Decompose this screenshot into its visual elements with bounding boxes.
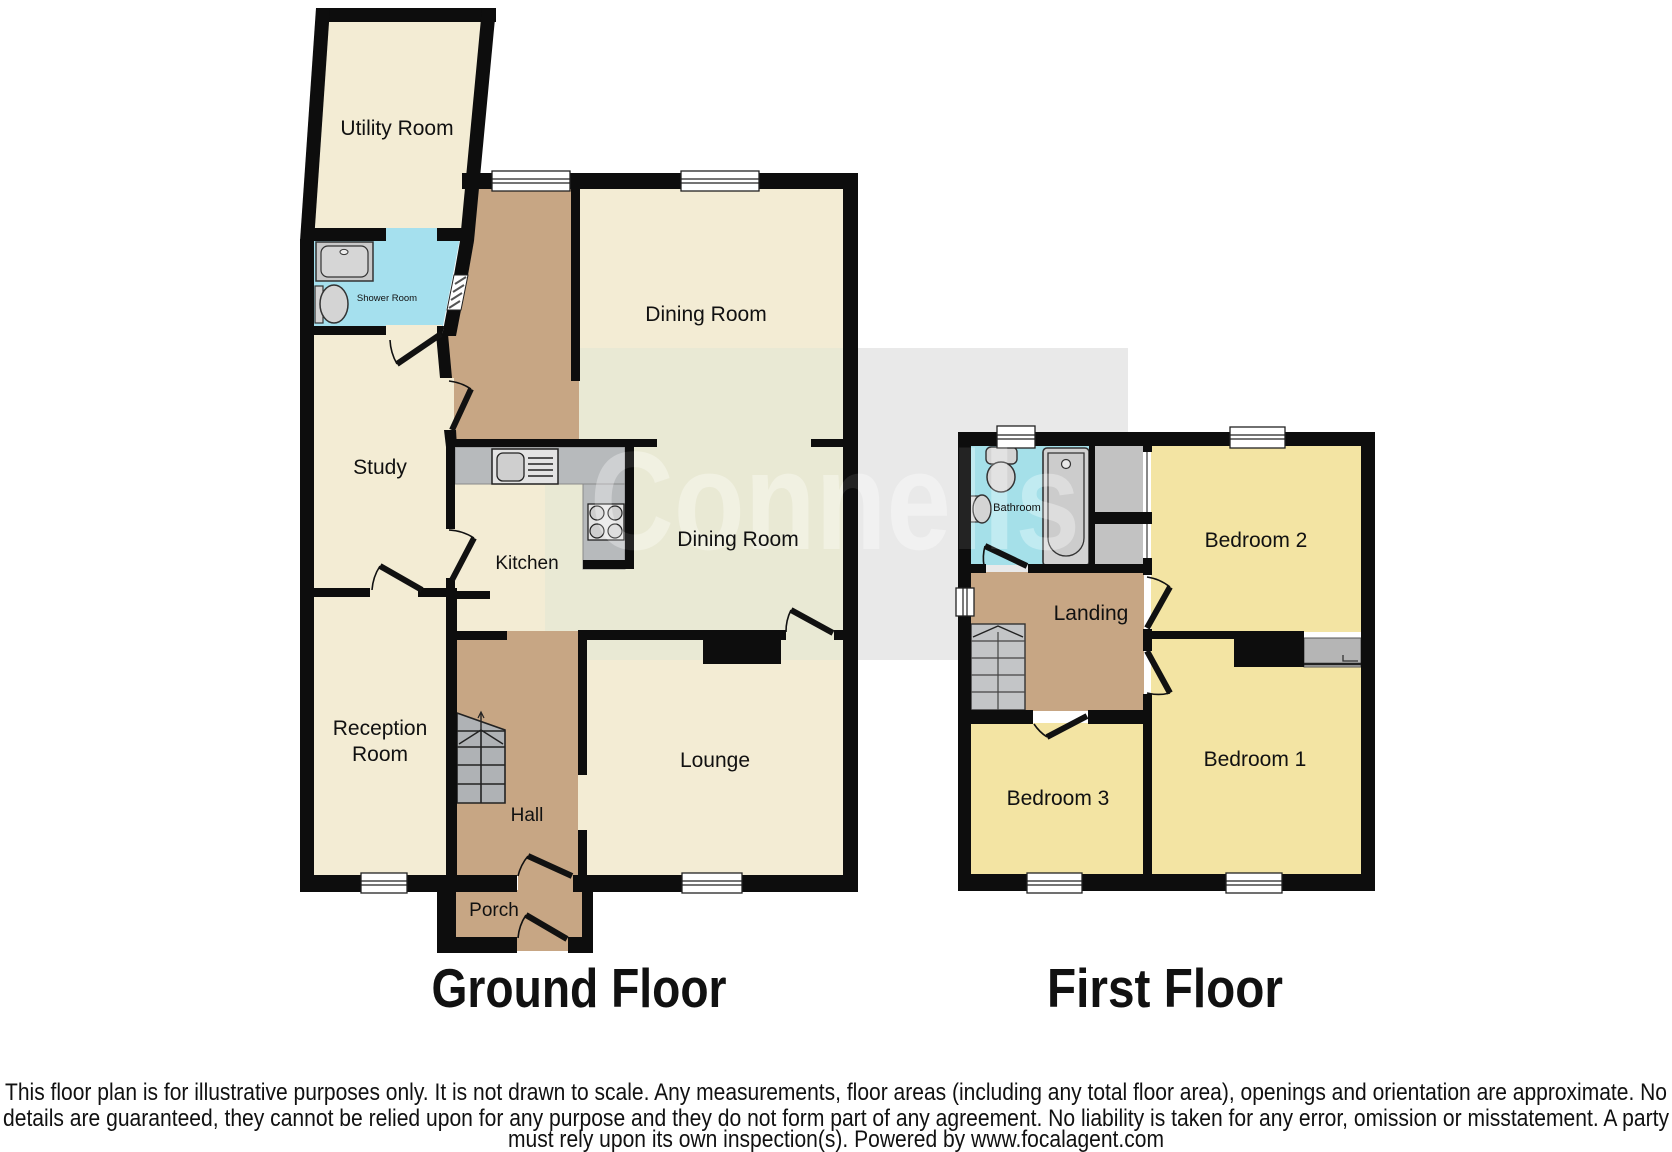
svg-text:Ground Floor: Ground Floor — [432, 957, 727, 1019]
svg-text:Study: Study — [353, 456, 407, 479]
svg-text:Lounge: Lounge — [680, 749, 750, 772]
svg-text:Dining Room: Dining Room — [645, 303, 766, 326]
svg-text:Dining Room: Dining Room — [677, 528, 798, 551]
svg-text:Reception: Reception — [333, 717, 428, 740]
svg-text:Kitchen: Kitchen — [495, 553, 558, 574]
svg-text:Hall: Hall — [511, 805, 544, 826]
svg-text:must rely upon its own inspect: must rely upon its own inspection(s). Po… — [508, 1126, 1164, 1152]
svg-text:Utility Room: Utility Room — [340, 117, 453, 140]
svg-text:First Floor: First Floor — [1047, 957, 1283, 1019]
svg-text:Room: Room — [352, 743, 408, 766]
svg-text:Connells: Connells — [590, 422, 1080, 579]
svg-text:Bathroom: Bathroom — [993, 502, 1041, 514]
svg-text:Bedroom 1: Bedroom 1 — [1204, 748, 1307, 771]
svg-text:This floor plan is for illustr: This floor plan is for illustrative purp… — [5, 1079, 1667, 1106]
svg-text:Porch: Porch — [469, 900, 519, 921]
svg-text:Bedroom 2: Bedroom 2 — [1205, 529, 1308, 552]
svg-text:Landing: Landing — [1054, 602, 1129, 625]
svg-text:Bedroom 3: Bedroom 3 — [1007, 787, 1110, 810]
svg-text:Shower Room: Shower Room — [357, 293, 417, 304]
